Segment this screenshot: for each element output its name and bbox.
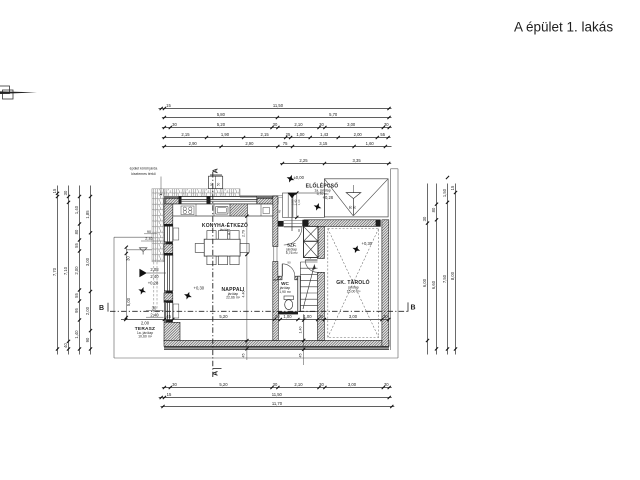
svg-text:5,80: 5,80 — [217, 112, 226, 117]
svg-text:3,00: 3,00 — [348, 382, 357, 387]
svg-text:30: 30 — [63, 190, 68, 195]
svg-text:30: 30 — [319, 122, 324, 127]
svg-text:5,20: 5,20 — [219, 314, 228, 319]
svg-text:épület körüli járda: épület körüli járda — [130, 167, 158, 171]
svg-text:50: 50 — [217, 183, 221, 187]
svg-text:95: 95 — [74, 308, 79, 313]
svg-text:30: 30 — [384, 122, 389, 127]
svg-text:15: 15 — [450, 185, 455, 190]
svg-text:15: 15 — [52, 188, 57, 193]
svg-text:25: 25 — [286, 132, 291, 137]
svg-text:2,00: 2,00 — [141, 320, 150, 325]
svg-text:30: 30 — [172, 122, 177, 127]
svg-text:30: 30 — [422, 216, 427, 221]
svg-text:2,08: 2,08 — [150, 267, 159, 272]
svg-text:2,15: 2,15 — [261, 132, 270, 137]
svg-text:2,90: 2,90 — [189, 141, 198, 146]
svg-text:2,25: 2,25 — [299, 158, 308, 163]
svg-text:1,00: 1,00 — [283, 314, 292, 319]
svg-text:5,20: 5,20 — [217, 122, 226, 127]
svg-text:30: 30 — [273, 382, 278, 387]
svg-text:2,15: 2,15 — [181, 132, 190, 137]
svg-text:1,10: 1,10 — [297, 199, 301, 205]
svg-text:3,00: 3,00 — [349, 314, 358, 319]
svg-text:3,35: 3,35 — [353, 158, 362, 163]
svg-text:A: A — [212, 168, 219, 173]
svg-text:15: 15 — [166, 103, 171, 108]
svg-text:7,10: 7,10 — [63, 266, 68, 275]
svg-text:1,60: 1,60 — [366, 141, 375, 146]
svg-text:90: 90 — [85, 337, 90, 342]
svg-text:15: 15 — [167, 392, 172, 397]
svg-text:4,40: 4,40 — [242, 291, 246, 298]
svg-text:90: 90 — [287, 261, 291, 265]
svg-text:30: 30 — [152, 306, 157, 311]
svg-text:3,00: 3,00 — [347, 122, 356, 127]
svg-text:2,10: 2,10 — [294, 382, 303, 387]
svg-text:55: 55 — [74, 293, 79, 298]
svg-text:1,00: 1,00 — [296, 132, 305, 137]
svg-text:10,60 m²: 10,60 m² — [138, 335, 153, 339]
svg-text:80: 80 — [74, 229, 79, 234]
svg-text:15,00 m²: 15,00 m² — [347, 289, 362, 293]
svg-text:5,70 m²: 5,70 m² — [317, 192, 330, 196]
svg-text:45: 45 — [299, 354, 303, 358]
svg-text:5,00: 5,00 — [126, 297, 131, 306]
svg-text:+0,28: +0,28 — [323, 195, 334, 200]
svg-text:7,50: 7,50 — [442, 274, 447, 283]
svg-text:40: 40 — [297, 229, 301, 233]
svg-text:A épület 1. lakás: A épület 1. lakás — [514, 20, 613, 35]
svg-text:30: 30 — [172, 382, 177, 387]
svg-text:2,10: 2,10 — [294, 122, 303, 127]
svg-text:1,40: 1,40 — [74, 205, 79, 214]
svg-text:3,15: 3,15 — [319, 141, 328, 146]
svg-text:6,60: 6,60 — [431, 280, 436, 289]
svg-text:B: B — [411, 304, 416, 311]
svg-text:45: 45 — [277, 210, 281, 214]
svg-text:2,00: 2,00 — [85, 306, 90, 315]
svg-text:1,50: 1,50 — [442, 188, 447, 197]
svg-text:±0,00: ±0,00 — [294, 175, 305, 180]
svg-text:1,43: 1,43 — [320, 132, 329, 137]
svg-text:30: 30 — [383, 314, 388, 319]
svg-text:11,70: 11,70 — [272, 401, 283, 406]
svg-text:30: 30 — [384, 382, 389, 387]
svg-text:50: 50 — [210, 183, 214, 187]
svg-text:B: B — [99, 305, 104, 312]
svg-text:2,79: 2,79 — [242, 230, 246, 237]
svg-text:30: 30 — [319, 382, 324, 387]
svg-text:30: 30 — [275, 314, 280, 319]
svg-text:+0,30: +0,30 — [362, 241, 373, 246]
svg-text:40: 40 — [63, 343, 68, 348]
svg-text:75: 75 — [283, 141, 288, 146]
svg-text:1,90 m²: 1,90 m² — [279, 290, 292, 294]
svg-text:+0,30: +0,30 — [194, 286, 205, 291]
svg-text:30: 30 — [126, 256, 131, 261]
svg-text:45: 45 — [166, 314, 171, 319]
svg-text:30: 30 — [319, 314, 324, 319]
svg-text:11,50: 11,50 — [272, 392, 283, 397]
svg-text:kiselemes térkő: kiselemes térkő — [131, 172, 155, 176]
svg-text:30: 30 — [273, 122, 278, 127]
svg-text:55: 55 — [74, 243, 79, 248]
svg-text:1,85: 1,85 — [85, 210, 90, 219]
svg-text:2,90: 2,90 — [245, 141, 254, 146]
svg-text:7,70: 7,70 — [52, 267, 57, 276]
svg-text:45: 45 — [242, 354, 246, 358]
svg-text:5,20: 5,20 — [219, 382, 228, 387]
svg-text:8,00: 8,00 — [450, 271, 455, 280]
svg-text:1,40: 1,40 — [74, 330, 79, 339]
svg-text:5,76 m²: 5,76 m² — [286, 251, 299, 255]
svg-text:+0,28: +0,28 — [148, 281, 159, 286]
svg-text:2,40: 2,40 — [150, 312, 159, 317]
svg-text:2,00: 2,00 — [354, 132, 363, 137]
svg-text:5,70: 5,70 — [329, 112, 338, 117]
svg-text:2,40: 2,40 — [150, 274, 159, 279]
svg-text:80: 80 — [431, 207, 436, 212]
svg-text:1,40: 1,40 — [299, 327, 303, 334]
svg-text:6,00: 6,00 — [422, 278, 427, 287]
svg-text:2,00: 2,00 — [74, 266, 79, 275]
svg-text:1,90: 1,90 — [221, 132, 230, 137]
svg-text:22,66 m²: 22,66 m² — [226, 296, 241, 300]
svg-text:A: A — [212, 371, 219, 376]
svg-text:1,00: 1,00 — [303, 314, 312, 319]
svg-text:90: 90 — [147, 230, 151, 234]
svg-text:30: 30 — [353, 206, 357, 210]
svg-text:3,00: 3,00 — [85, 257, 90, 266]
svg-text:11,50: 11,50 — [273, 103, 284, 108]
svg-text:2,40: 2,40 — [145, 237, 152, 241]
svg-text:55: 55 — [380, 132, 385, 137]
